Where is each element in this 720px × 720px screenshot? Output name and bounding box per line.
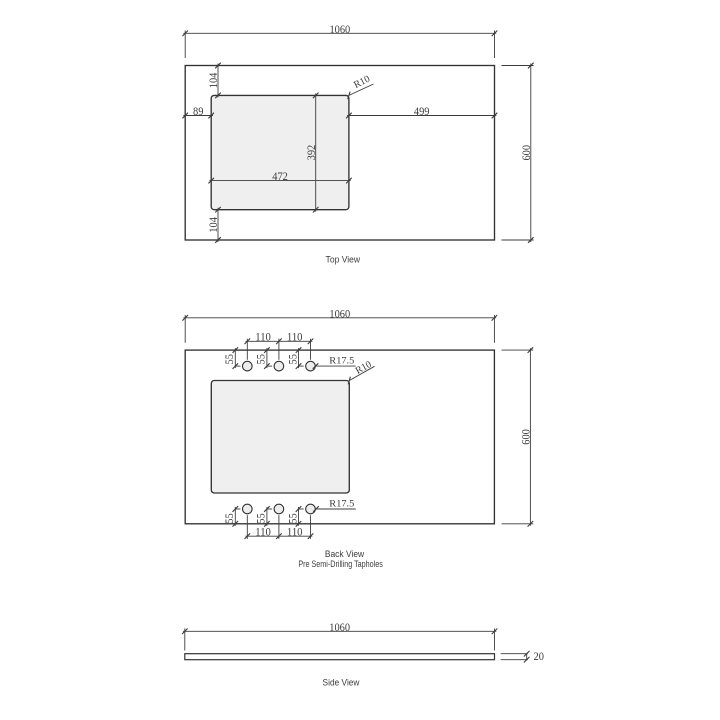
svg-text:R17.5: R17.5	[329, 499, 354, 509]
svg-text:Top View: Top View	[326, 254, 361, 264]
svg-text:55: 55	[287, 354, 299, 365]
svg-text:104: 104	[208, 217, 220, 233]
svg-text:600: 600	[521, 429, 533, 445]
svg-text:55: 55	[224, 513, 236, 524]
svg-text:392: 392	[306, 145, 318, 161]
svg-text:472: 472	[272, 171, 288, 183]
svg-text:110: 110	[287, 331, 303, 343]
svg-text:110: 110	[255, 526, 271, 538]
svg-text:600: 600	[521, 145, 533, 161]
svg-text:89: 89	[193, 106, 204, 118]
svg-text:Pre Semi-Drilling Tapholes: Pre Semi-Drilling Tapholes	[298, 559, 383, 569]
svg-text:R17.5: R17.5	[329, 356, 354, 366]
svg-text:1060: 1060	[329, 622, 350, 634]
svg-text:20: 20	[534, 651, 545, 663]
svg-text:104: 104	[208, 72, 220, 88]
svg-text:110: 110	[287, 526, 303, 538]
svg-text:Side View: Side View	[323, 677, 360, 687]
svg-text:1060: 1060	[329, 24, 350, 36]
svg-text:499: 499	[414, 106, 430, 118]
svg-text:Back View: Back View	[325, 549, 365, 559]
svg-text:1060: 1060	[329, 308, 350, 320]
svg-text:55: 55	[256, 513, 268, 524]
svg-text:55: 55	[287, 513, 299, 524]
svg-text:55: 55	[256, 354, 268, 365]
svg-text:55: 55	[224, 354, 236, 365]
svg-text:110: 110	[255, 331, 271, 343]
